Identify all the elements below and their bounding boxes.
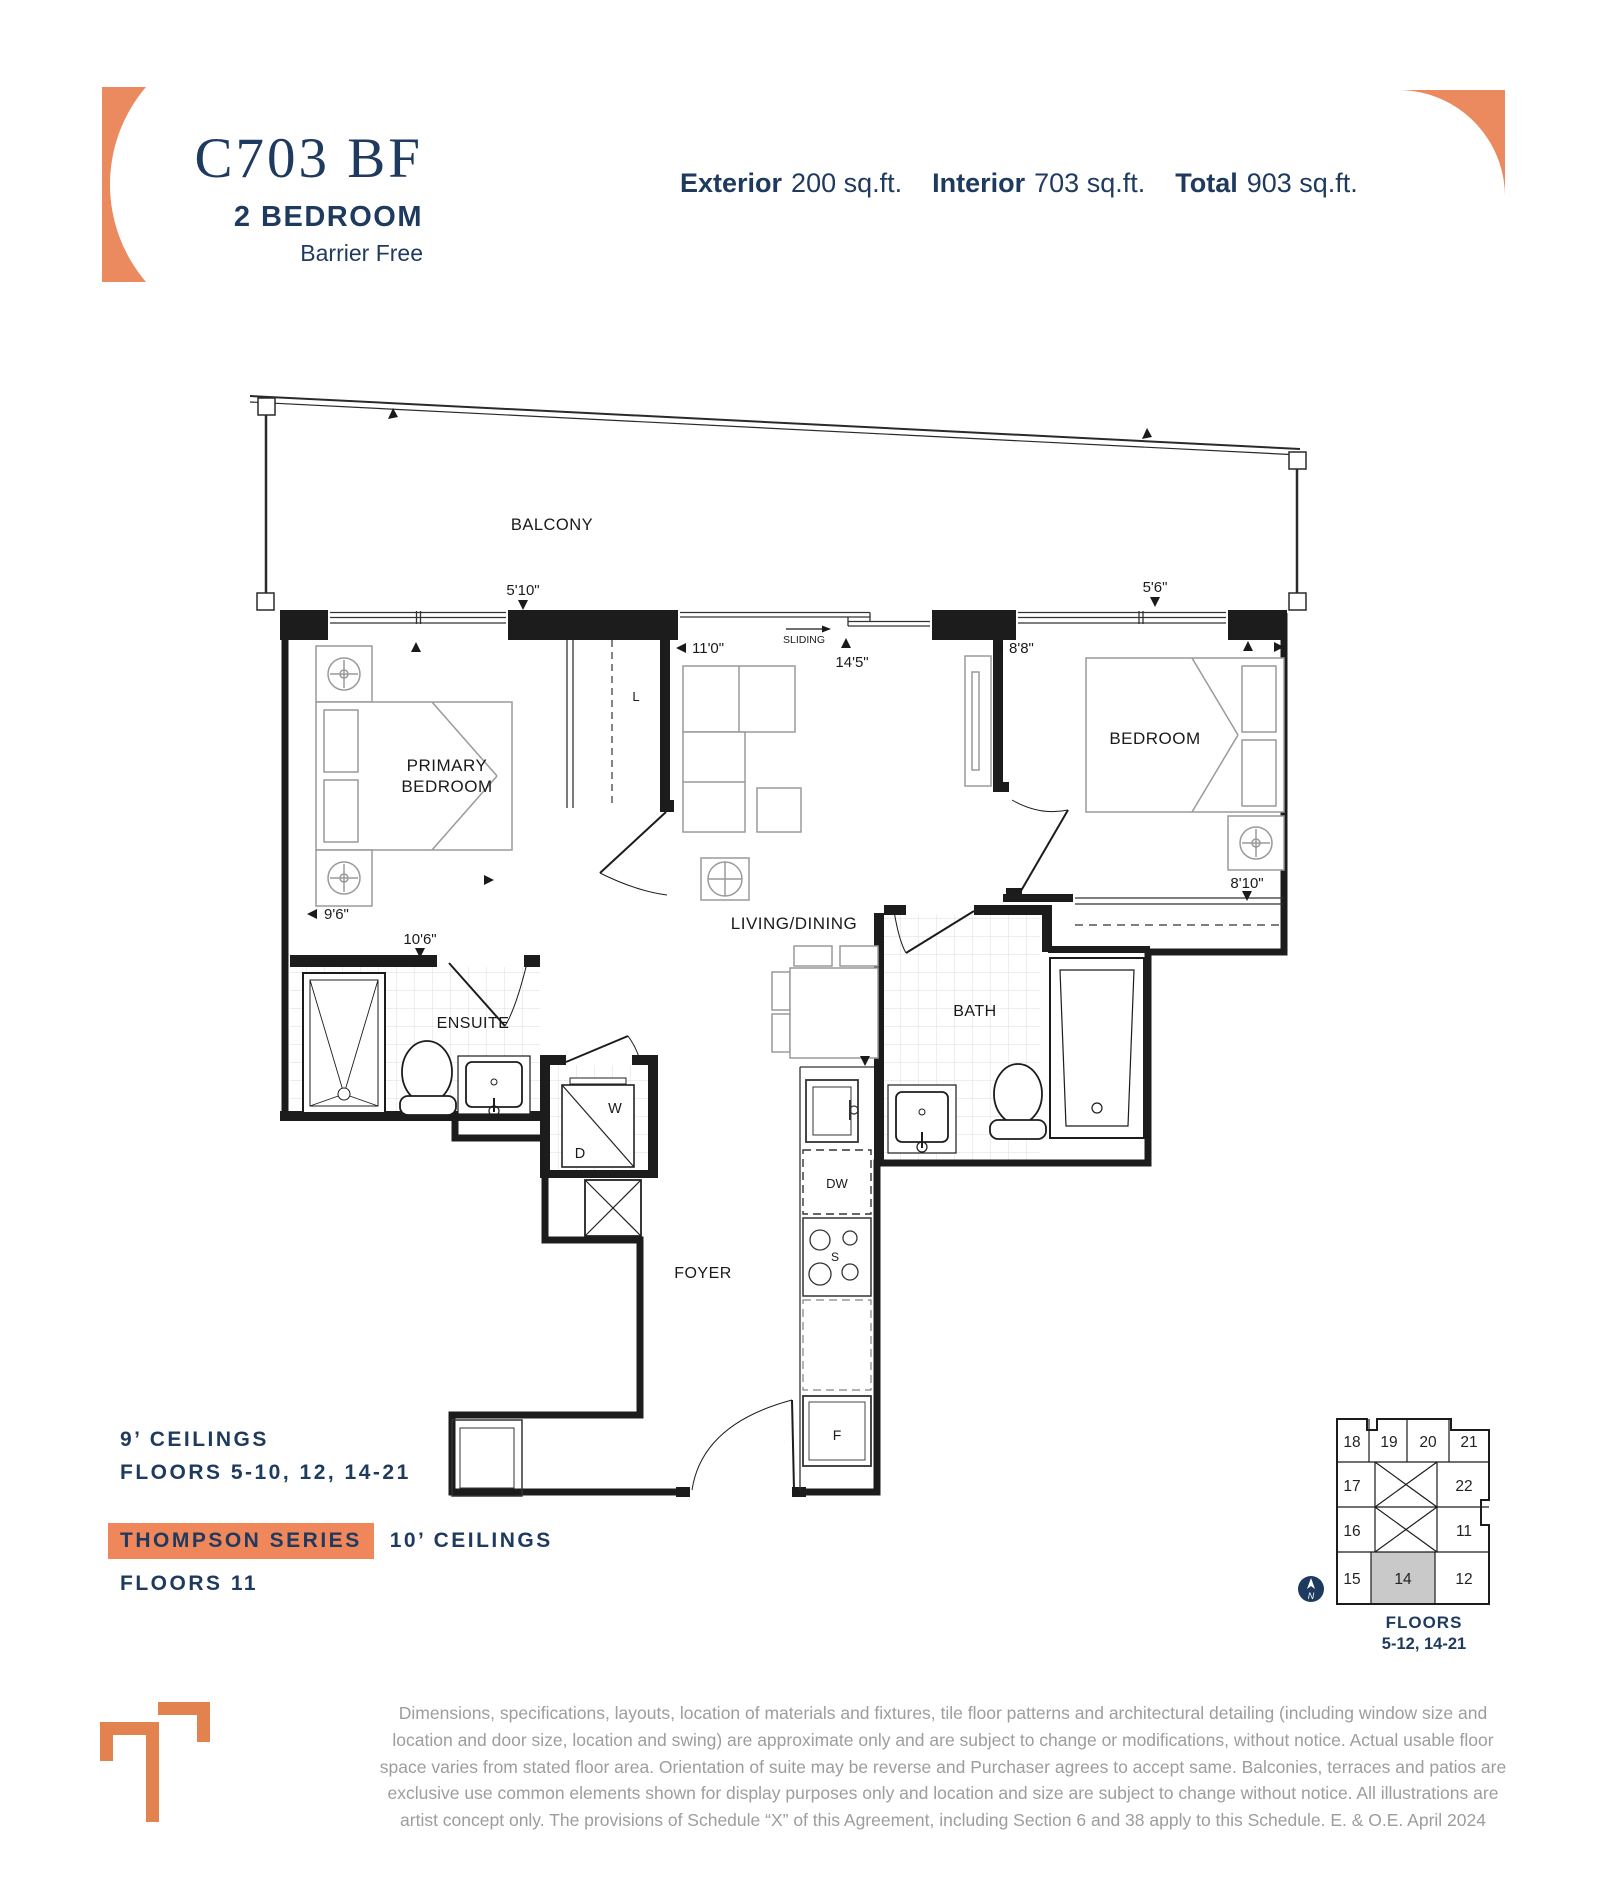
dim-10-6: 10'6" — [403, 931, 436, 948]
ceiling-9-label: 9’ CEILINGS — [120, 1428, 553, 1452]
washer-label: W — [608, 1101, 622, 1117]
unit-header: C703 BF 2 BEDROOM Barrier Free — [175, 130, 423, 267]
area-interior: Interior703 sq.ft. — [932, 168, 1145, 199]
unit-type: 2 BEDROOM — [175, 201, 423, 234]
ceiling-info: 9’ CEILINGS FLOORS 5-10, 12, 14-21 THOMP… — [120, 1428, 553, 1596]
dryer-label: D — [575, 1146, 585, 1162]
floors-9-label: FLOORS 5-10, 12, 14-21 — [120, 1461, 553, 1485]
room-label-foyer: FOYER — [674, 1265, 732, 1282]
fridge-label: F — [833, 1427, 842, 1443]
dim-8-10: 8'10" — [1230, 875, 1263, 892]
dining-chair — [772, 972, 790, 1010]
dining-table — [790, 968, 878, 1058]
dining-chair — [772, 1014, 790, 1052]
brand-logo — [95, 1688, 220, 1833]
dining-chair — [840, 946, 878, 966]
room-label-bath: BATH — [953, 1003, 996, 1020]
unit-20: 20 — [1419, 1434, 1437, 1451]
unit-22: 22 — [1455, 1478, 1472, 1495]
room-label-balcony: BALCONY — [511, 516, 593, 534]
keyplan-floors-range: 5-12, 14-21 — [1382, 1635, 1466, 1653]
corner-sail-ornament — [1398, 88, 1508, 203]
unit-code: C703 BF — [175, 130, 423, 187]
area-total: Total903 sq.ft. — [1175, 168, 1358, 199]
unit-12: 12 — [1455, 1571, 1472, 1588]
ceiling-10-label: 10’ CEILINGS — [390, 1529, 553, 1553]
unit-17: 17 — [1343, 1478, 1360, 1495]
bath-toilet — [994, 1064, 1042, 1124]
crescent-ornament — [100, 85, 152, 285]
svg-text:N: N — [1308, 1591, 1315, 1601]
dishwasher-label: DW — [826, 1176, 848, 1191]
bathtub — [1050, 958, 1144, 1138]
keyplan-floors: FLOORS 5-12, 14-21 — [1382, 1613, 1466, 1653]
north-compass-icon: N — [1298, 1576, 1324, 1602]
keyplan-floors-label: FLOORS — [1386, 1613, 1463, 1632]
key-plan: 18 19 20 21 17 22 16 11 15 14 12 N FLOOR… — [1280, 1408, 1505, 1668]
floorplan-sheet: { "header": { "unit_code": "C703 BF", "u… — [0, 0, 1600, 1898]
sliding-label: SLIDING — [783, 634, 825, 646]
room-label-ensuite: ENSUITE — [437, 1015, 510, 1032]
unit-16: 16 — [1343, 1523, 1360, 1540]
balcony-structure — [250, 396, 1306, 610]
sliding-door-annotation: SLIDING — [783, 626, 831, 647]
unit-15: 15 — [1343, 1571, 1360, 1588]
unit-11: 11 — [1456, 1523, 1472, 1540]
coffee-table — [757, 788, 801, 832]
dim-9-6: 9'6" — [324, 906, 349, 923]
thompson-series-badge: THOMPSON SERIES — [108, 1523, 374, 1559]
unit-19: 19 — [1380, 1434, 1397, 1451]
unit-18: 18 — [1343, 1434, 1360, 1451]
ensuite-toilet — [402, 1041, 452, 1103]
dim-8-8: 8'8" — [1009, 640, 1034, 657]
area-exterior: Exterior200 sq.ft. — [680, 168, 902, 199]
room-label-primary-2: BEDROOM — [401, 777, 492, 796]
linen-label: L — [632, 689, 639, 704]
dining-chair — [794, 946, 832, 966]
room-label-bedroom: BEDROOM — [1109, 729, 1200, 748]
floors-10-label: FLOORS 11 — [120, 1572, 553, 1596]
area-summary: Exterior200 sq.ft. Interior703 sq.ft. To… — [680, 168, 1358, 199]
room-label-primary-1: PRIMARY — [407, 756, 488, 775]
unit-subtype: Barrier Free — [175, 240, 423, 267]
floor-plan: SLIDING — [220, 320, 1320, 1530]
stove-label: S — [831, 1250, 839, 1264]
unit-14: 14 — [1394, 1571, 1412, 1588]
dim-5-6: 5'6" — [1143, 579, 1168, 596]
dim-11-0: 11'0" — [692, 640, 724, 657]
windows — [330, 611, 1226, 626]
unit-21: 21 — [1460, 1434, 1477, 1451]
room-label-living-dining: LIVING/DINING — [731, 914, 857, 933]
dim-5-10: 5'10" — [506, 582, 539, 599]
dim-14-5: 14'5" — [835, 654, 868, 671]
legal-disclaimer: Dimensions, specifications, layouts, loc… — [368, 1700, 1518, 1834]
